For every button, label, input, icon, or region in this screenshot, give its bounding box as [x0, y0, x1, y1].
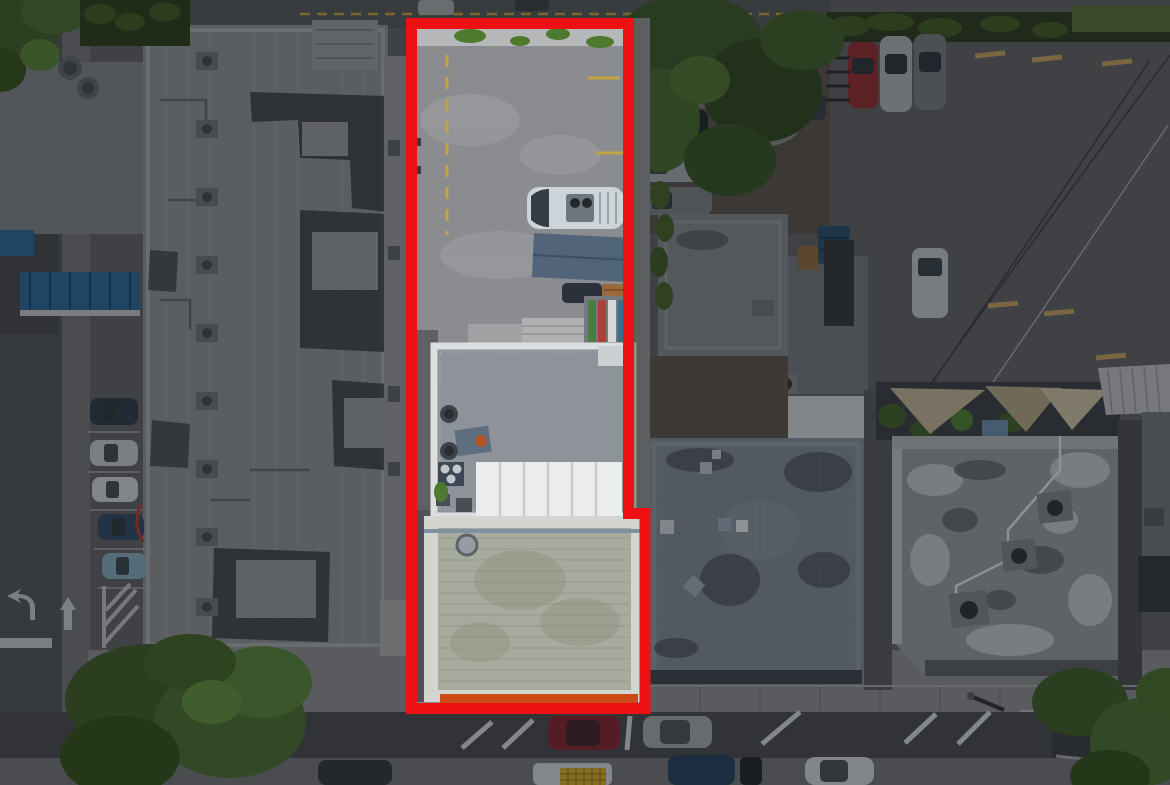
big-roof	[424, 516, 646, 702]
van-windshield	[531, 189, 549, 227]
van-roof-unit	[566, 194, 594, 222]
parcel	[406, 18, 650, 714]
aerial-photo	[0, 0, 1170, 785]
round-vent	[457, 535, 477, 555]
cargo-van	[527, 187, 624, 229]
orange-dome-vent	[475, 435, 487, 447]
white-steps	[522, 318, 584, 346]
aerial-scene	[0, 0, 1170, 785]
roof-plant	[434, 482, 448, 502]
parcel-building	[434, 346, 633, 516]
van-fan-2	[582, 198, 592, 208]
van-fan-1	[570, 198, 580, 208]
